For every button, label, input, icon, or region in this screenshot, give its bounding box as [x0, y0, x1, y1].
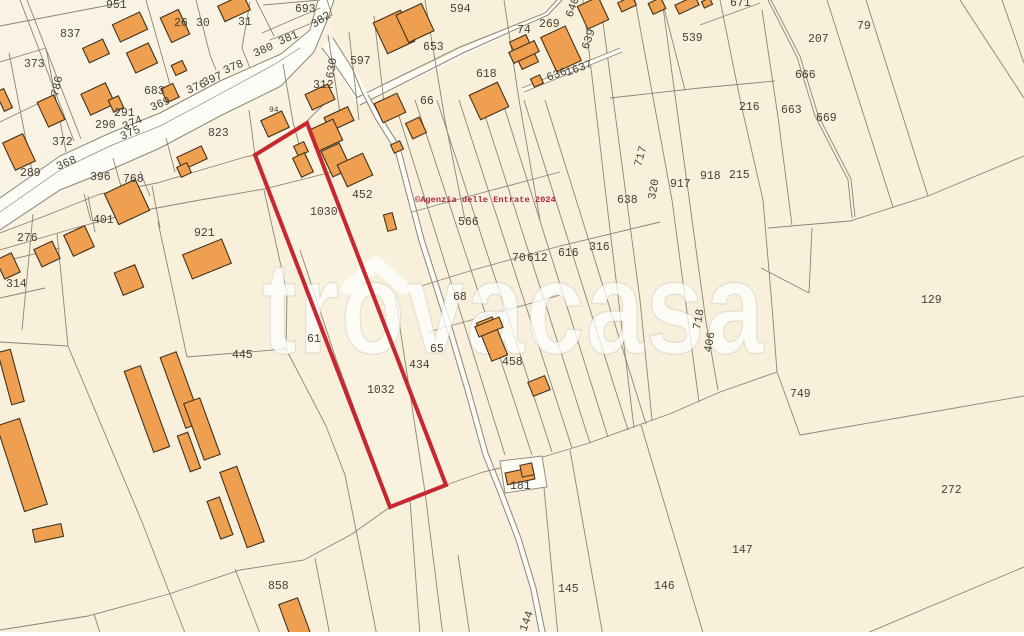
svg-text:401: 401 [93, 214, 114, 227]
svg-text:823: 823 [208, 127, 229, 140]
svg-text:618: 618 [476, 68, 497, 81]
svg-text:276: 276 [17, 232, 38, 245]
svg-text:918: 918 [700, 170, 721, 183]
svg-text:94: 94 [269, 106, 279, 115]
svg-text:373: 373 [24, 58, 45, 71]
svg-text:434: 434 [409, 359, 430, 372]
svg-text:129: 129 [921, 294, 942, 307]
svg-text:566: 566 [458, 216, 479, 229]
svg-text:©Agenzia delle Entrate 2024: ©Agenzia delle Entrate 2024 [415, 195, 556, 205]
svg-text:749: 749 [790, 388, 811, 401]
svg-text:858: 858 [268, 580, 289, 593]
svg-text:66: 66 [420, 95, 434, 108]
svg-text:269: 269 [539, 18, 560, 31]
svg-text:290: 290 [95, 119, 116, 132]
svg-text:74: 74 [517, 24, 531, 37]
svg-text:458: 458 [502, 356, 523, 369]
svg-text:312: 312 [313, 79, 334, 92]
svg-text:917: 917 [670, 178, 691, 191]
svg-text:145: 145 [558, 583, 579, 596]
svg-text:146: 146 [654, 580, 675, 593]
svg-text:289: 289 [20, 167, 41, 180]
svg-text:768: 768 [123, 173, 144, 186]
svg-text:653: 653 [423, 41, 444, 54]
svg-text:671: 671 [730, 0, 751, 10]
svg-text:612: 612 [527, 252, 548, 265]
svg-text:445: 445 [232, 349, 253, 362]
svg-text:666: 666 [795, 69, 816, 82]
svg-text:616: 616 [558, 247, 579, 260]
svg-text:951: 951 [106, 0, 127, 12]
svg-text:147: 147 [732, 544, 753, 557]
svg-text:314: 314 [6, 278, 27, 291]
svg-text:693: 693 [295, 3, 316, 16]
svg-text:31: 31 [238, 16, 252, 29]
svg-text:272: 272 [941, 484, 962, 497]
svg-text:921: 921 [194, 227, 215, 240]
svg-text:70: 70 [512, 252, 526, 265]
svg-text:663: 663 [781, 104, 802, 117]
svg-text:216: 216 [739, 101, 760, 114]
svg-text:669: 669 [816, 112, 837, 125]
svg-text:316: 316 [589, 241, 610, 254]
svg-text:30: 30 [196, 17, 210, 30]
svg-text:452: 452 [352, 189, 373, 202]
svg-text:1030: 1030 [310, 206, 338, 219]
svg-text:372: 372 [52, 136, 73, 149]
svg-text:26: 26 [174, 17, 188, 30]
svg-text:396: 396 [90, 171, 111, 184]
svg-text:65: 65 [430, 343, 444, 356]
svg-text:79: 79 [857, 20, 871, 33]
svg-text:597: 597 [350, 55, 371, 68]
svg-text:539: 539 [682, 32, 703, 45]
svg-text:61: 61 [307, 333, 321, 346]
svg-text:594: 594 [450, 3, 471, 16]
svg-text:1032: 1032 [367, 384, 395, 397]
svg-text:207: 207 [808, 33, 829, 46]
svg-text:68: 68 [453, 291, 467, 304]
svg-text:215: 215 [729, 169, 750, 182]
svg-text:638: 638 [617, 194, 638, 207]
svg-text:837: 837 [60, 28, 81, 41]
svg-text:181: 181 [510, 480, 531, 493]
